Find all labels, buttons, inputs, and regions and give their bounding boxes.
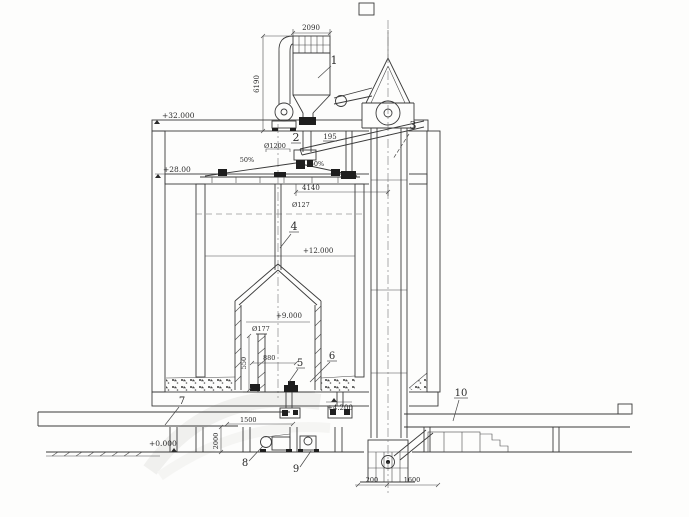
elev-bin-bottom: +4.200 — [327, 404, 353, 412]
motor — [261, 437, 272, 448]
floor-ribs — [212, 177, 338, 183]
bin-right-wall — [355, 184, 364, 377]
drive-unit — [300, 436, 316, 450]
dim-gallery-span: 4140 — [302, 184, 320, 192]
drawing-page: 2090 6190 1 +32.000 +28.00 2 Ø1200 195 5… — [0, 0, 689, 517]
elev-gallery: +28.00 — [163, 165, 191, 174]
dim-inner-height: 550 — [240, 357, 248, 369]
part-label-7: 7 — [179, 396, 185, 407]
elev-ground: +0.000 — [149, 439, 177, 448]
dim-inner-pipe-dia: Ø177 — [252, 325, 270, 333]
chute-fitting — [336, 96, 347, 107]
right-outer-wall — [427, 131, 440, 392]
technical-drawing-svg: 2090 6190 1 +32.000 +28.00 2 Ø1200 195 5… — [0, 0, 689, 517]
spreader-body — [294, 150, 316, 160]
support-platform — [428, 432, 480, 452]
part-label-6: 6 — [329, 351, 335, 362]
steps — [480, 434, 508, 452]
dim-pipe-dia: Ø127 — [292, 201, 310, 209]
conveyor-drive — [618, 404, 632, 414]
elev-roof: +32.000 — [162, 111, 195, 120]
dim-boot-a: 200 — [366, 476, 378, 484]
level-mark-roof — [154, 120, 160, 124]
ballast-left — [166, 378, 235, 392]
part-label-5: 5 — [297, 358, 303, 369]
bin-left-wall — [196, 184, 205, 377]
part-label-1: 1 — [331, 54, 338, 67]
dim-spreader-dia: Ø1200 — [264, 142, 286, 150]
dim-slope-left: 50% — [240, 156, 254, 164]
elev-bin-level: +12.000 — [303, 247, 333, 255]
part-label-10: 10 — [455, 388, 468, 399]
elev-inner-top: +9.000 — [276, 312, 302, 320]
dim-boot-b: 1600 — [404, 476, 421, 484]
dust-collector — [272, 36, 330, 131]
part-label-9: 9 — [293, 464, 299, 475]
dim-basement-height: 2000 — [212, 433, 220, 450]
collector-body — [293, 53, 330, 95]
dim-top-width: 2090 — [302, 24, 320, 32]
dim-collector-height: 6190 — [253, 75, 261, 93]
dim-slope-right: 50% — [310, 160, 324, 168]
part-label-3: 3 — [410, 119, 417, 132]
dim-basement-span: 1500 — [240, 416, 257, 424]
level-mark-bin-bottom — [331, 398, 337, 402]
ballast-right — [321, 378, 355, 392]
dim-inner-span: 880 — [263, 354, 275, 362]
part-label-8: 8 — [242, 458, 248, 469]
outlet-valve — [299, 117, 316, 125]
bucket-elevator — [334, 3, 415, 495]
fan — [275, 103, 293, 121]
level-mark-gallery — [155, 174, 161, 178]
filter-grid — [293, 36, 330, 53]
vent-box — [359, 3, 374, 15]
part-label-4: 4 — [291, 220, 298, 233]
dim-chute-mark: 195 — [323, 133, 336, 141]
part-label-2: 2 — [293, 131, 300, 144]
